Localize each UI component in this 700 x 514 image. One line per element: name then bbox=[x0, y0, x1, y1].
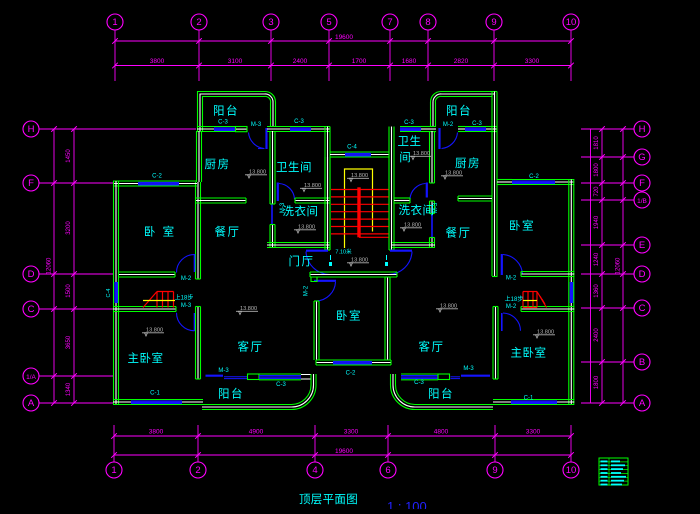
svg-text:1700: 1700 bbox=[352, 58, 367, 65]
svg-text:3300: 3300 bbox=[344, 429, 359, 436]
svg-text:M-3: M-3 bbox=[251, 122, 262, 128]
svg-text:1360: 1360 bbox=[594, 284, 600, 298]
svg-text:阳台: 阳台 bbox=[218, 387, 244, 401]
svg-text:9: 9 bbox=[492, 465, 497, 476]
svg-text:C-3: C-3 bbox=[472, 121, 482, 127]
svg-text:客厅: 客厅 bbox=[419, 340, 445, 354]
svg-text:1940: 1940 bbox=[594, 215, 600, 229]
svg-text:4800: 4800 bbox=[434, 429, 449, 436]
svg-text:1: 1 bbox=[111, 465, 116, 476]
svg-text:3800: 3800 bbox=[149, 429, 164, 436]
svg-text:3200: 3200 bbox=[66, 221, 72, 235]
svg-text:12060: 12060 bbox=[47, 257, 53, 274]
svg-text:M-2: M-2 bbox=[304, 285, 310, 296]
svg-text:7.10米: 7.10米 bbox=[335, 248, 352, 256]
svg-text:8: 8 bbox=[425, 17, 430, 28]
svg-text:F: F bbox=[28, 178, 34, 189]
svg-text:厨房: 厨房 bbox=[455, 157, 481, 170]
svg-text:G: G bbox=[638, 152, 645, 163]
svg-text:M-2: M-2 bbox=[443, 122, 454, 128]
svg-text:10: 10 bbox=[566, 17, 577, 28]
svg-text:1: 1 bbox=[112, 17, 117, 28]
svg-text:上18步: 上18步 bbox=[175, 294, 194, 302]
svg-text:M-3: M-3 bbox=[181, 303, 192, 309]
svg-text:4: 4 bbox=[312, 465, 317, 476]
svg-text:H: H bbox=[639, 124, 646, 135]
svg-text:2: 2 bbox=[195, 465, 200, 476]
svg-text:3: 3 bbox=[268, 17, 273, 28]
svg-text:M-3: M-3 bbox=[218, 368, 229, 374]
svg-text:2400: 2400 bbox=[293, 58, 308, 65]
svg-text:2: 2 bbox=[196, 17, 201, 28]
svg-text:19600: 19600 bbox=[335, 34, 353, 41]
svg-text:卧室: 卧室 bbox=[336, 309, 362, 323]
svg-text:3650: 3650 bbox=[66, 335, 72, 349]
svg-text:C-3: C-3 bbox=[414, 380, 424, 386]
svg-text:M-3: M-3 bbox=[463, 366, 474, 372]
svg-text:1680: 1680 bbox=[402, 58, 417, 65]
svg-text:C-1: C-1 bbox=[524, 396, 534, 402]
svg-text:M-3: M-3 bbox=[433, 202, 439, 213]
svg-text:1/A: 1/A bbox=[26, 374, 36, 381]
svg-text:D: D bbox=[28, 269, 35, 280]
svg-text:主卧室: 主卧室 bbox=[128, 351, 164, 365]
svg-text:1500: 1500 bbox=[66, 284, 72, 298]
svg-text:M-3: M-3 bbox=[280, 202, 286, 213]
svg-text:4900: 4900 bbox=[249, 429, 264, 436]
svg-text:F: F bbox=[639, 178, 645, 189]
svg-text:19600: 19600 bbox=[335, 448, 353, 455]
svg-text:洗衣间: 洗衣间 bbox=[283, 204, 319, 218]
svg-text:1 : 100: 1 : 100 bbox=[387, 499, 427, 509]
svg-text:7: 7 bbox=[387, 17, 392, 28]
svg-text:C-2: C-2 bbox=[529, 174, 539, 180]
svg-text:C: C bbox=[28, 304, 35, 315]
svg-text:H: H bbox=[28, 124, 35, 135]
svg-text:阳台: 阳台 bbox=[213, 104, 239, 118]
svg-text:阳台: 阳台 bbox=[428, 387, 454, 401]
svg-text:1450: 1450 bbox=[66, 149, 72, 163]
svg-text:C-3: C-3 bbox=[404, 120, 414, 126]
svg-text:间: 间 bbox=[399, 151, 411, 164]
svg-text:顶层平面图: 顶层平面图 bbox=[299, 493, 358, 506]
svg-text:1800: 1800 bbox=[594, 375, 600, 389]
svg-text:C-3: C-3 bbox=[294, 119, 304, 125]
svg-text:M-2: M-2 bbox=[506, 276, 517, 282]
svg-text:卫生: 卫生 bbox=[398, 134, 422, 148]
svg-text:厨房: 厨房 bbox=[205, 158, 231, 171]
svg-text:门厅: 门厅 bbox=[289, 254, 315, 268]
svg-text:M-2: M-2 bbox=[506, 304, 517, 310]
svg-text:客厅: 客厅 bbox=[238, 340, 264, 354]
svg-text:C-1: C-1 bbox=[150, 391, 160, 397]
svg-text:1810: 1810 bbox=[594, 136, 600, 150]
svg-text:C-4: C-4 bbox=[347, 145, 357, 151]
svg-text:720: 720 bbox=[594, 186, 600, 197]
svg-text:C-2: C-2 bbox=[346, 371, 356, 377]
svg-text:3300: 3300 bbox=[525, 58, 540, 65]
svg-text:M-2: M-2 bbox=[181, 276, 192, 282]
svg-text:卧室: 卧室 bbox=[509, 219, 535, 233]
svg-text:C-2: C-2 bbox=[152, 174, 162, 180]
svg-text:1240: 1240 bbox=[594, 252, 600, 266]
svg-text:2820: 2820 bbox=[454, 58, 469, 65]
svg-text:C-3: C-3 bbox=[276, 382, 286, 388]
svg-text:10: 10 bbox=[566, 465, 577, 476]
svg-text:1800: 1800 bbox=[594, 163, 600, 177]
svg-text:C-3: C-3 bbox=[218, 120, 228, 126]
svg-text:A: A bbox=[639, 398, 646, 409]
svg-text:餐厅: 餐厅 bbox=[446, 226, 472, 240]
svg-text:上18步: 上18步 bbox=[505, 295, 524, 303]
svg-text:1340: 1340 bbox=[66, 382, 72, 396]
svg-text:3800: 3800 bbox=[150, 58, 165, 65]
svg-text:1/B: 1/B bbox=[637, 198, 647, 205]
svg-text:C: C bbox=[639, 303, 646, 314]
svg-text:阳台: 阳台 bbox=[446, 104, 472, 118]
svg-text:卧 室: 卧 室 bbox=[144, 225, 176, 239]
svg-text:D: D bbox=[639, 269, 646, 280]
svg-text:9: 9 bbox=[491, 17, 496, 28]
svg-text:洗衣间: 洗衣间 bbox=[399, 203, 435, 217]
svg-text:12060: 12060 bbox=[616, 257, 622, 274]
svg-text:卫生间: 卫生间 bbox=[276, 160, 312, 174]
svg-text:E: E bbox=[639, 240, 645, 251]
svg-text:2400: 2400 bbox=[594, 328, 600, 342]
svg-text:6: 6 bbox=[385, 465, 390, 476]
svg-text:主卧室: 主卧室 bbox=[511, 346, 547, 360]
svg-text:餐厅: 餐厅 bbox=[215, 225, 241, 239]
svg-text:3100: 3100 bbox=[228, 58, 243, 65]
svg-text:B: B bbox=[639, 357, 645, 368]
svg-text:C-4: C-4 bbox=[106, 289, 112, 298]
svg-text:A: A bbox=[28, 398, 35, 409]
svg-text:3300: 3300 bbox=[526, 429, 541, 436]
svg-text:5: 5 bbox=[326, 17, 331, 28]
